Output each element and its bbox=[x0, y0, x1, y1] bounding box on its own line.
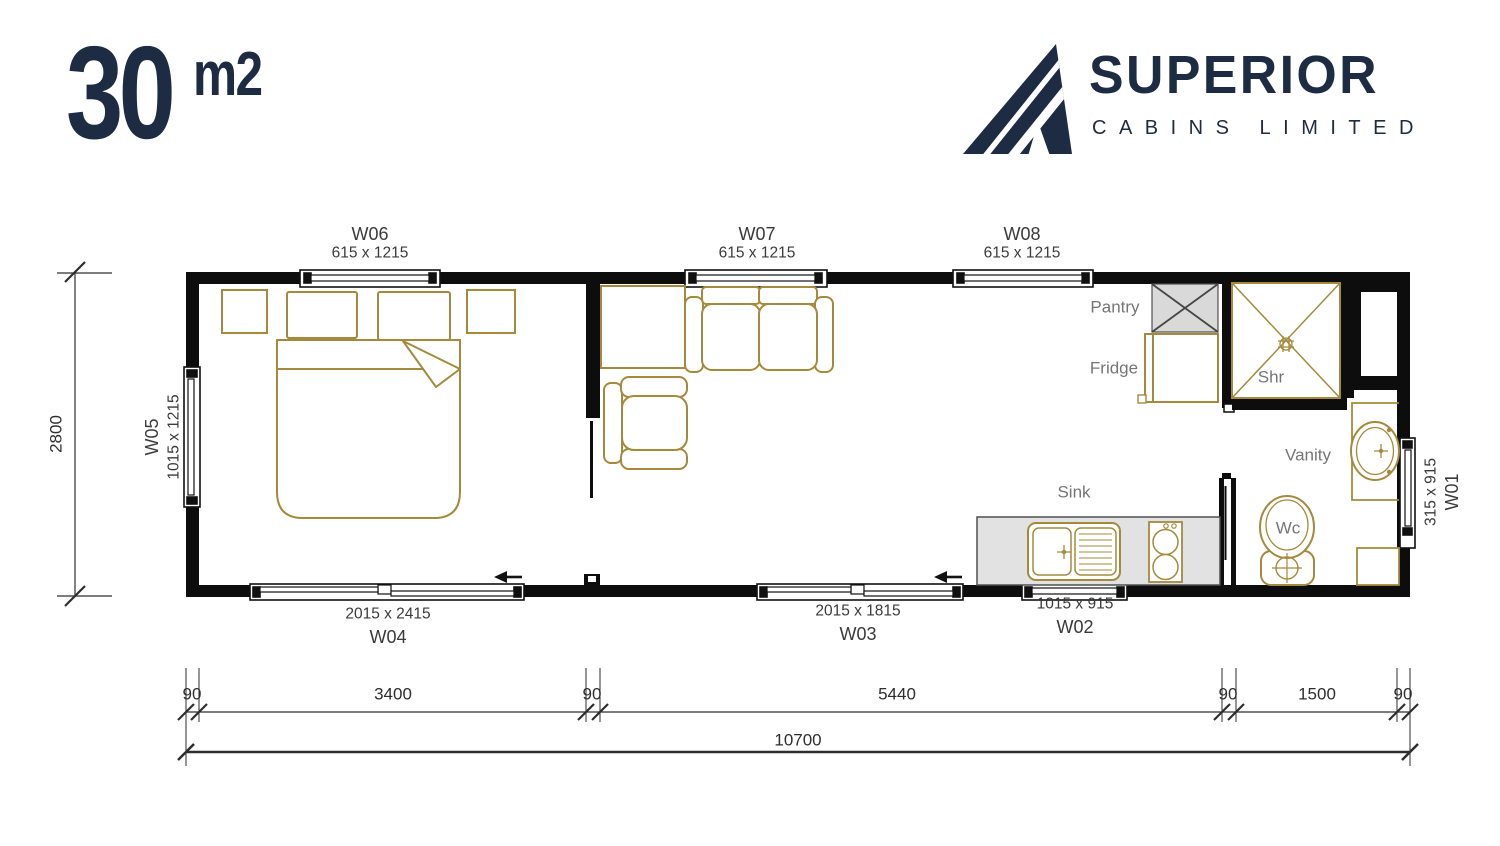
sofa bbox=[685, 287, 833, 372]
shower bbox=[1232, 283, 1340, 398]
side-table bbox=[601, 286, 685, 368]
arrow-left-icon bbox=[934, 571, 962, 583]
vanity-cabinet bbox=[1357, 548, 1399, 585]
wardrobe bbox=[1354, 283, 1410, 390]
cooktop bbox=[1149, 522, 1182, 582]
bed bbox=[277, 292, 460, 518]
label-w02-id: W02 bbox=[1056, 618, 1093, 636]
window-w01 bbox=[1400, 438, 1415, 548]
dim-seg-1500: 1500 bbox=[1298, 686, 1336, 703]
door-slide-arrows bbox=[494, 571, 962, 583]
label-w05-size: 1015 x 1215 bbox=[166, 394, 182, 479]
label-w06-id: W06 bbox=[351, 225, 388, 243]
label-w02-size: 1015 x 915 bbox=[1037, 596, 1114, 612]
label-w05-id: W05 bbox=[143, 418, 161, 455]
label-pantry: Pantry bbox=[1090, 299, 1139, 316]
dim-seg-90b: 90 bbox=[583, 686, 602, 703]
window-w05 bbox=[184, 367, 200, 507]
label-w03-id: W03 bbox=[839, 625, 876, 643]
area-unit: m2 bbox=[193, 44, 261, 106]
toilet bbox=[1260, 496, 1314, 585]
brand-name: SUPERIOR bbox=[1089, 48, 1379, 102]
label-w04-id: W04 bbox=[369, 628, 406, 646]
window-w06 bbox=[300, 270, 440, 287]
label-w08-size: 615 x 1215 bbox=[984, 245, 1061, 261]
dim-seg-90a: 90 bbox=[183, 686, 202, 703]
window-w03 bbox=[757, 584, 963, 600]
label-fridge: Fridge bbox=[1090, 360, 1138, 377]
bathroom-slider-panel bbox=[1225, 486, 1227, 560]
arrow-left-icon bbox=[494, 571, 522, 583]
pantry bbox=[1152, 284, 1218, 332]
area-number: 30 bbox=[66, 30, 171, 155]
label-shower: Shr bbox=[1258, 369, 1284, 386]
label-w06-size: 615 x 1215 bbox=[332, 245, 409, 261]
window-w07 bbox=[685, 270, 827, 287]
area-logo: 30 m2 bbox=[66, 30, 278, 155]
dim-seg-90c: 90 bbox=[1219, 686, 1238, 703]
dim-seg-3400: 3400 bbox=[374, 686, 412, 703]
pillow-left bbox=[287, 292, 357, 338]
label-w04-size: 2015 x 2415 bbox=[345, 606, 430, 622]
vanity-unit bbox=[1351, 403, 1399, 585]
label-sink: Sink bbox=[1057, 484, 1090, 501]
window-w08 bbox=[953, 270, 1093, 287]
label-w07-size: 615 x 1215 bbox=[719, 245, 796, 261]
label-w03-size: 2015 x 1815 bbox=[815, 603, 900, 619]
brand-tagline: CABINS LIMITED bbox=[1092, 118, 1426, 138]
dim-length-10700: 10700 bbox=[774, 732, 821, 749]
armchair bbox=[604, 377, 687, 469]
bedroom-slider-panel bbox=[590, 421, 593, 498]
label-w08-id: W08 bbox=[1003, 225, 1040, 243]
sliding-door-w04 bbox=[250, 584, 524, 600]
fridge bbox=[1138, 334, 1218, 403]
nightstand-left bbox=[222, 290, 267, 333]
dim-seg-5440: 5440 bbox=[878, 686, 916, 703]
label-w01-size: 315 x 915 bbox=[1423, 458, 1439, 526]
dim-width-2800: 2800 bbox=[48, 415, 65, 453]
kitchen-sink bbox=[1028, 523, 1120, 580]
dim-seg-90d: 90 bbox=[1394, 686, 1413, 703]
brand-triangle-icon bbox=[963, 44, 1080, 174]
floorplan-page: 30 m2 SUPERIOR CABINS LIMITED W06 615 x … bbox=[0, 0, 1500, 846]
label-vanity: Vanity bbox=[1285, 447, 1331, 464]
nightstand-right bbox=[467, 290, 515, 333]
kitchen-counter bbox=[977, 517, 1220, 585]
label-w01-id: W01 bbox=[1443, 473, 1461, 510]
label-wc: Wc bbox=[1276, 520, 1301, 537]
label-w07-id: W07 bbox=[738, 225, 775, 243]
pillow-right bbox=[378, 292, 450, 340]
